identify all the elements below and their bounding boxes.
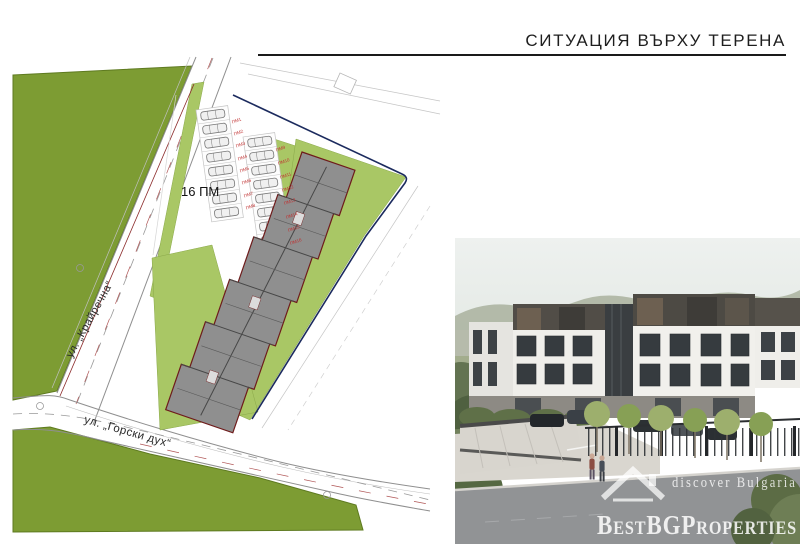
watermark-tagline: discover Bulgaria [672,475,797,491]
page-title: СИТУАЦИЯ ВЪРХУ ТЕРЕНА [525,31,786,51]
page: 16 ПМ ул. „Крайречна“ ул. „Горски дух“ П… [0,0,800,544]
building-render-photo: discover Bulgaria BestBGProperties [455,238,800,544]
residential-buildings [469,294,800,418]
site-plan [0,0,455,544]
watermark-brand: BestBGProperties [597,510,797,540]
parking-total-label: 16 ПМ [181,184,219,199]
title-underline [258,54,786,56]
